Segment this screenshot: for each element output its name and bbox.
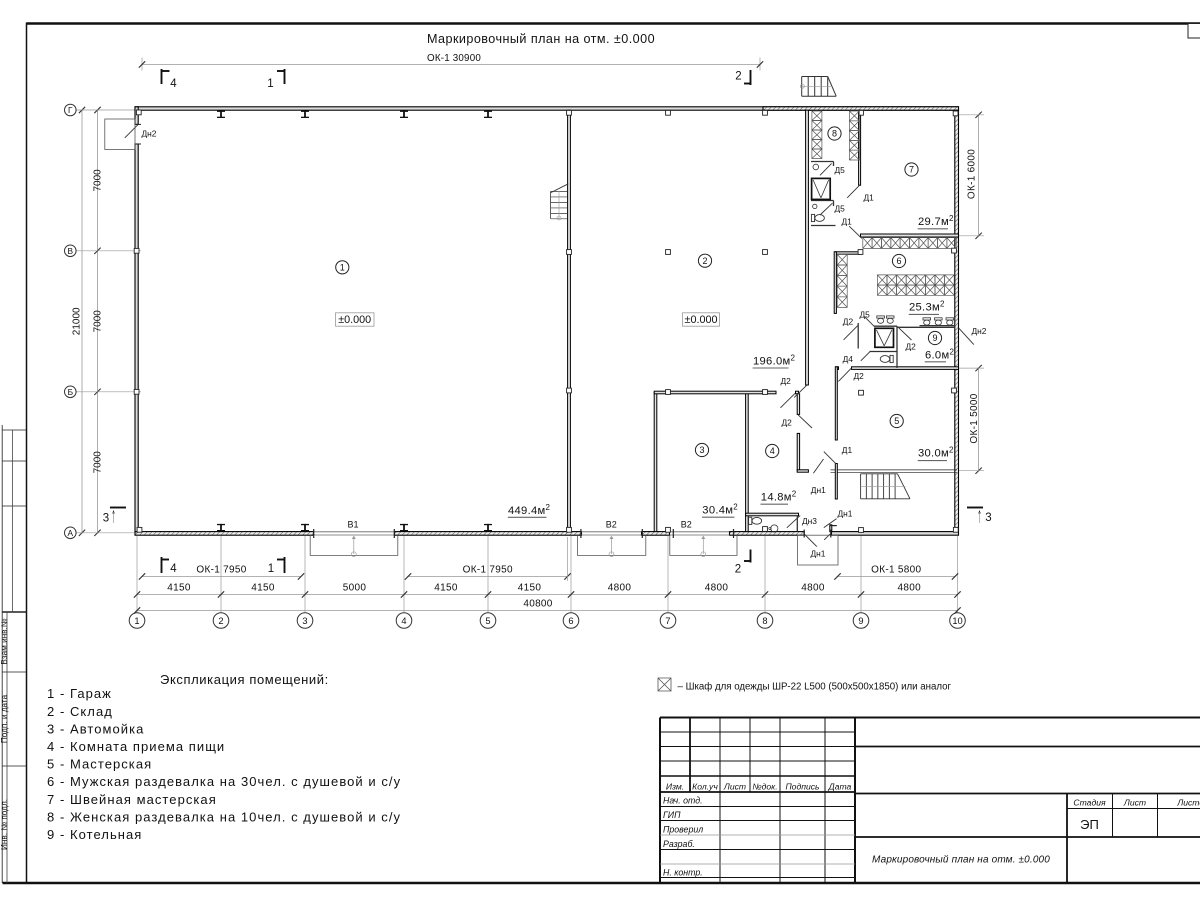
svg-text:Подпись: Подпись: [785, 782, 820, 792]
svg-text:4: 4: [170, 563, 177, 575]
svg-text:Подп. и дата: Подп. и дата: [0, 694, 9, 743]
svg-text:6: 6: [568, 616, 573, 626]
svg-text:5000: 5000: [343, 583, 367, 594]
svg-text:Маркировочный план на отм. ±0.: Маркировочный план на отм. ±0.000: [427, 32, 655, 46]
svg-text:№док.: №док.: [752, 782, 777, 792]
svg-text:Инв. № подл.: Инв. № подл.: [0, 799, 9, 850]
svg-text:Лист: Лист: [1123, 798, 1146, 808]
svg-text:1: 1: [268, 563, 274, 575]
svg-text:А: А: [68, 528, 74, 538]
svg-text:Дн3: Дн3: [802, 516, 817, 526]
svg-text:4150: 4150: [518, 583, 542, 594]
svg-text:2: 2: [702, 256, 707, 266]
svg-text:Д5: Д5: [835, 165, 846, 175]
svg-text:Дн2: Дн2: [972, 326, 987, 336]
svg-text:3 - Автомойка: 3 - Автомойка: [47, 721, 144, 736]
svg-text:ОК-1 5800: ОК-1 5800: [871, 565, 921, 576]
svg-text:Дн2: Дн2: [142, 129, 157, 139]
svg-text:9 - Котельная: 9 - Котельная: [47, 827, 142, 842]
svg-text:2: 2: [735, 564, 741, 576]
svg-text:В1: В1: [348, 520, 359, 530]
svg-text:1: 1: [340, 263, 345, 273]
svg-text:10: 10: [952, 616, 962, 626]
svg-text:14.8м2: 14.8м2: [761, 490, 797, 504]
svg-text:Д2: Д2: [854, 371, 865, 381]
svg-text:4: 4: [770, 446, 775, 456]
svg-text:Н. контр.: Н. контр.: [663, 868, 703, 878]
svg-text:8: 8: [762, 616, 767, 626]
svg-text:6 - Мужская раздевалка на 30че: 6 - Мужская раздевалка на 30чел. с душев…: [47, 774, 401, 789]
svg-text:40800: 40800: [523, 599, 552, 610]
svg-text:ОК-1 30900: ОК-1 30900: [427, 53, 481, 64]
svg-text:7000: 7000: [93, 310, 104, 333]
svg-text:Проверил: Проверил: [663, 825, 703, 835]
svg-text:Д2: Д2: [843, 317, 854, 327]
svg-text:Лист: Лист: [723, 782, 746, 792]
svg-text:5: 5: [894, 416, 899, 426]
svg-text:7000: 7000: [93, 169, 104, 192]
svg-text:Г: Г: [68, 105, 73, 115]
svg-text:25.3м2: 25.3м2: [909, 300, 945, 314]
svg-text:В2: В2: [681, 520, 692, 530]
svg-text:Стадия: Стадия: [1073, 798, 1106, 808]
svg-text:В2: В2: [606, 520, 617, 530]
svg-text:Разраб.: Разраб.: [663, 839, 695, 849]
svg-text:5 - Мастерская: 5 - Мастерская: [47, 757, 152, 772]
svg-text:Д1: Д1: [842, 217, 853, 227]
svg-text:Д5: Д5: [860, 310, 871, 320]
svg-text:29.7м2: 29.7м2: [918, 214, 954, 228]
svg-text:5: 5: [485, 616, 490, 626]
svg-text:Дн1: Дн1: [811, 485, 826, 495]
svg-text:2 - Склад: 2 - Склад: [47, 704, 113, 719]
svg-text:2: 2: [218, 616, 223, 626]
svg-text:30.4м2: 30.4м2: [702, 503, 738, 517]
svg-text:±0.000: ±0.000: [685, 314, 718, 326]
svg-text:Кол.уч: Кол.уч: [692, 782, 718, 792]
svg-text:6.0м2: 6.0м2: [925, 348, 954, 362]
svg-text:4150: 4150: [251, 583, 275, 594]
svg-text:Д2: Д2: [906, 342, 917, 352]
svg-text:– Шкаф для одежды ШР-22 L500: – Шкаф для одежды ШР-22 L500 (500x500x18…: [678, 682, 952, 693]
svg-text:6: 6: [896, 256, 901, 266]
svg-text:ОК-1 7950: ОК-1 7950: [196, 565, 246, 576]
svg-text:8 - Женская раздевалка на 10че: 8 - Женская раздевалка на 10чел. с душев…: [47, 809, 401, 824]
svg-text:21000: 21000: [72, 307, 83, 335]
svg-text:9: 9: [858, 616, 863, 626]
svg-text:4: 4: [401, 616, 406, 626]
svg-text:9: 9: [932, 333, 937, 343]
svg-text:1 - Гараж: 1 - Гараж: [47, 686, 112, 701]
svg-text:3: 3: [302, 616, 307, 626]
svg-text:3: 3: [103, 513, 109, 525]
svg-text:4800: 4800: [801, 583, 825, 594]
svg-text:7: 7: [665, 616, 670, 626]
svg-text:Б: Б: [68, 387, 74, 397]
svg-text:3: 3: [699, 445, 704, 455]
svg-text:7000: 7000: [93, 451, 104, 474]
svg-text:В: В: [68, 246, 74, 256]
svg-text:3: 3: [985, 512, 991, 524]
svg-text:7 - Швейная мастерская: 7 - Швейная мастерская: [47, 792, 217, 807]
svg-text:4800: 4800: [705, 583, 729, 594]
svg-text:196.0м2: 196.0м2: [753, 354, 796, 368]
svg-text:1: 1: [267, 78, 273, 90]
svg-text:ЭП: ЭП: [1080, 817, 1099, 832]
svg-text:4 - Комната приема пищи: 4 - Комната приема пищи: [47, 739, 225, 754]
svg-text:Д1: Д1: [842, 445, 853, 455]
svg-text:Д5: Д5: [835, 204, 846, 214]
svg-text:Дата: Дата: [828, 782, 852, 792]
svg-text:4: 4: [170, 78, 177, 90]
svg-text:Взам.инв.№: Взам.инв.№: [0, 618, 9, 664]
svg-text:1: 1: [134, 616, 139, 626]
svg-text:30.0м2: 30.0м2: [918, 446, 954, 460]
svg-text:Д2: Д2: [781, 376, 792, 386]
svg-text:Дн1: Дн1: [811, 549, 826, 559]
svg-text:ОК-1 6000: ОК-1 6000: [966, 149, 977, 199]
svg-text:ГИП: ГИП: [663, 810, 681, 820]
svg-text:4150: 4150: [167, 583, 191, 594]
svg-text:Д1: Д1: [864, 193, 875, 203]
svg-text:Д2: Д2: [782, 418, 793, 428]
svg-text:Д4: Д4: [843, 354, 854, 364]
svg-text:7: 7: [909, 165, 914, 175]
svg-text:±0.000: ±0.000: [338, 314, 371, 326]
svg-text:Экспликация помещений:: Экспликация помещений:: [160, 672, 329, 687]
svg-text:4800: 4800: [608, 583, 632, 594]
svg-text:ОК-1 7950: ОК-1 7950: [463, 565, 513, 576]
svg-text:Нач. отд.: Нач. отд.: [663, 796, 703, 806]
svg-text:Дн1: Дн1: [838, 509, 853, 519]
svg-text:4800: 4800: [898, 583, 922, 594]
svg-text:449.4м2: 449.4м2: [508, 503, 551, 517]
svg-text:Изм.: Изм.: [666, 782, 684, 792]
svg-text:Листов: Листов: [1176, 798, 1200, 808]
svg-text:4150: 4150: [434, 583, 458, 594]
svg-text:2: 2: [735, 71, 741, 83]
svg-text:8: 8: [832, 129, 837, 139]
svg-text:Маркировочный план на отм. ±0.: Маркировочный план на отм. ±0.000: [872, 855, 1050, 866]
